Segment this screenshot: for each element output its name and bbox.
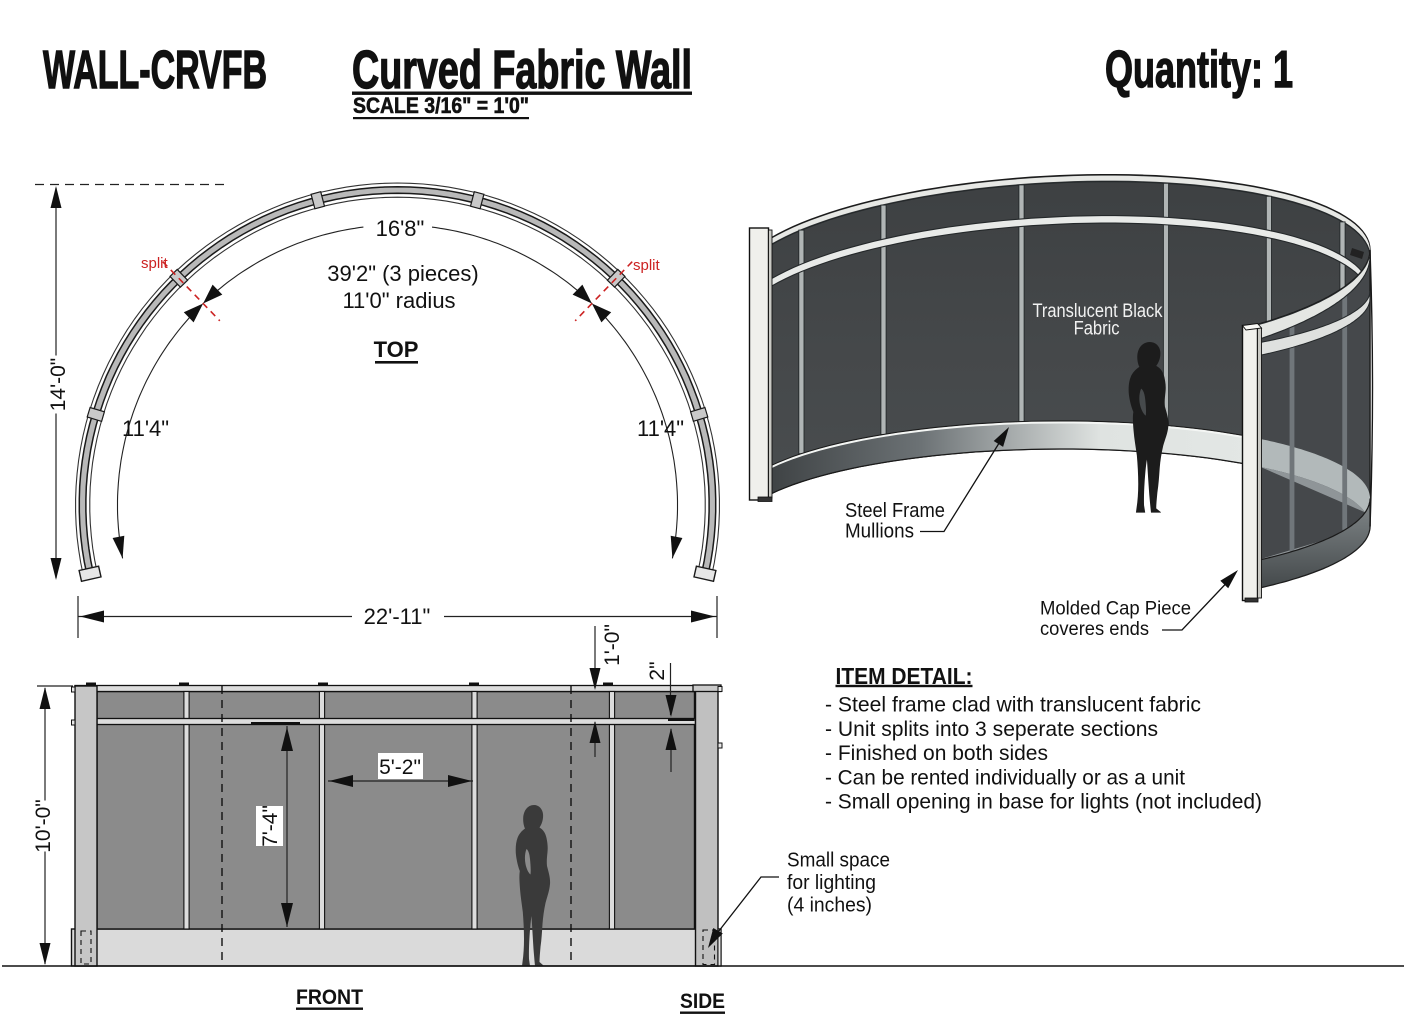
svg-text:Quantity: 1: Quantity: 1 bbox=[1105, 41, 1293, 99]
svg-text:- Steel frame clad with transl: - Steel frame clad with translucent fabr… bbox=[825, 694, 1201, 717]
svg-text:WALL-CRVFB: WALL-CRVFB bbox=[43, 40, 267, 100]
svg-text:2": 2" bbox=[646, 661, 669, 680]
svg-text:11'0" radius: 11'0" radius bbox=[342, 288, 455, 313]
svg-text:22'-11": 22'-11" bbox=[364, 604, 431, 629]
svg-text:- Unit splits into 3 seperate: - Unit splits into 3 seperate sections bbox=[825, 718, 1158, 741]
svg-text:split: split bbox=[633, 257, 661, 274]
svg-text:Steel Frame: Steel Frame bbox=[845, 500, 945, 522]
svg-text:11'4": 11'4" bbox=[637, 416, 684, 441]
svg-text:7'-4": 7'-4" bbox=[259, 805, 282, 847]
svg-text:14'-0": 14'-0" bbox=[47, 358, 70, 412]
svg-text:10'-0": 10'-0" bbox=[32, 799, 55, 853]
svg-text:coveres ends: coveres ends bbox=[1040, 618, 1149, 640]
svg-text:Mullions: Mullions bbox=[845, 521, 914, 543]
svg-text:Curved Fabric Wall: Curved Fabric Wall bbox=[352, 40, 692, 100]
svg-text:TOP: TOP bbox=[374, 337, 419, 362]
svg-text:split: split bbox=[141, 255, 169, 272]
svg-text:Small space: Small space bbox=[787, 850, 890, 872]
svg-text:- Small opening in base for li: - Small opening in base for lights (not … bbox=[825, 791, 1262, 814]
svg-text:Molded Cap Piece: Molded Cap Piece bbox=[1040, 598, 1191, 620]
svg-text:SIDE: SIDE bbox=[680, 990, 725, 1013]
svg-text:Fabric: Fabric bbox=[1074, 319, 1120, 340]
svg-text:16'8": 16'8" bbox=[376, 216, 425, 241]
svg-text:- Finished on both sides: - Finished on both sides bbox=[825, 742, 1048, 765]
svg-text:(4 inches): (4 inches) bbox=[787, 895, 872, 917]
svg-text:1'-0": 1'-0" bbox=[601, 624, 624, 666]
svg-text:for lighting: for lighting bbox=[787, 872, 876, 894]
svg-text:FRONT: FRONT bbox=[296, 986, 363, 1009]
svg-text:- Can be rented individually o: - Can be rented individually or as a uni… bbox=[825, 766, 1185, 789]
svg-text:39'2" (3 pieces): 39'2" (3 pieces) bbox=[327, 261, 478, 286]
svg-text:SCALE 3/16" = 1'0": SCALE 3/16" = 1'0" bbox=[353, 93, 529, 118]
svg-text:11'4": 11'4" bbox=[122, 416, 169, 441]
svg-text:5'-2": 5'-2" bbox=[379, 756, 421, 779]
